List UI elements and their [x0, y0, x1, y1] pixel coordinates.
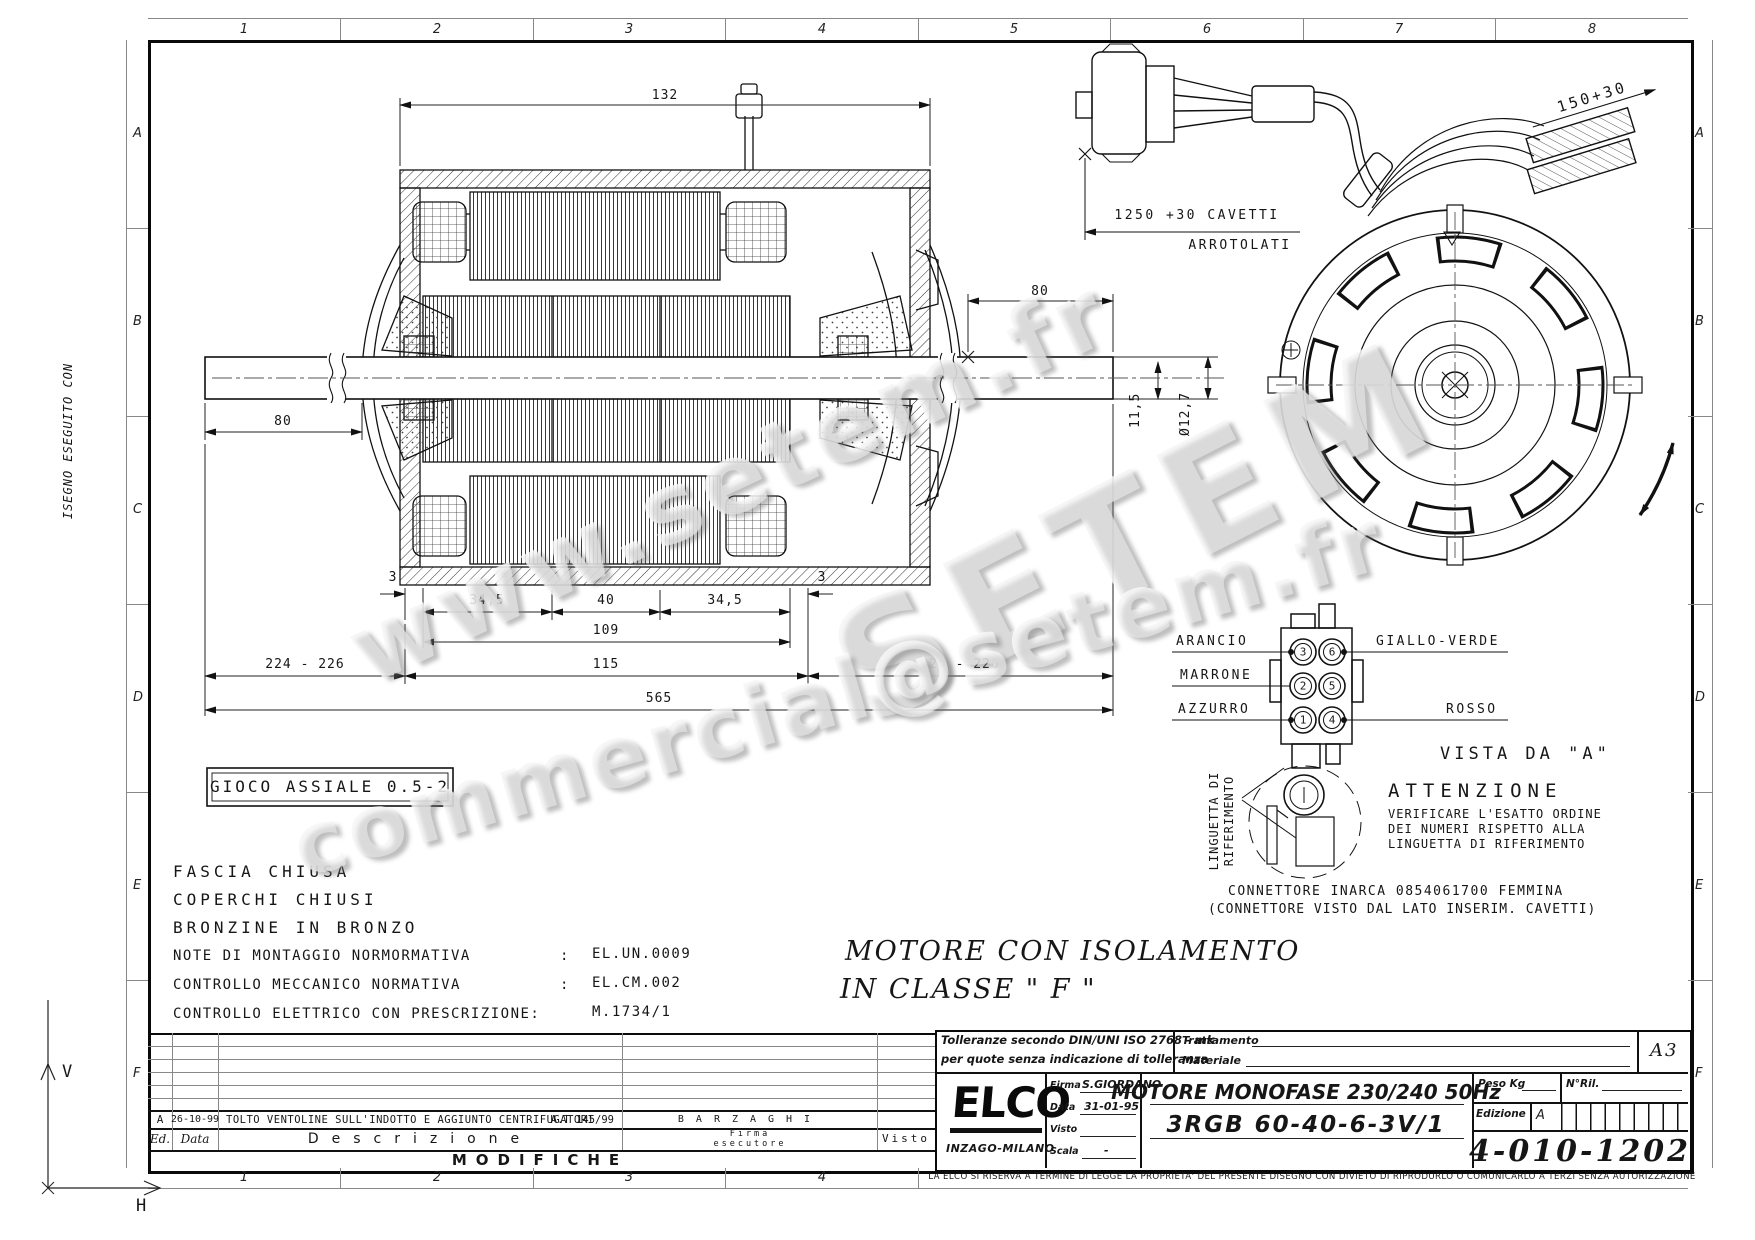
wire-label-arancio: ARANCIO [1176, 634, 1248, 649]
connector-note-line2: (CONNETTORE VISTO DAL LATO INSERIM. CAVE… [1208, 902, 1596, 917]
isolation-note-line1: MOTORE CON ISOLAMENTO [845, 936, 1300, 967]
grid-row-label: A [133, 126, 142, 141]
isolation-note-line2: IN CLASSE " F " [840, 974, 1097, 1005]
grid-row-label: E [1695, 878, 1703, 893]
pin-number-1: 1 [1300, 714, 1307, 727]
note-coperchi: COPERCHI CHIUSI [173, 890, 378, 909]
materiale-label: Materiale [1182, 1054, 1241, 1067]
attenzione-title: ATTENZIONE [1388, 780, 1562, 802]
attenzione-line3: LINGUETTA DI RIFERIMENTO [1388, 837, 1585, 851]
note-montaggio-label: NOTE DI MONTAGGIO NORMORMATIVA [173, 948, 471, 964]
grid-row-label: F [1695, 1066, 1702, 1081]
scala-label: Scala [1050, 1146, 1079, 1157]
outer-border-right [1712, 40, 1713, 1168]
grid-row-label: C [133, 502, 142, 517]
note-montaggio-sep: : [560, 948, 570, 964]
grid-row-label: C [1695, 502, 1704, 517]
note-fascia: FASCIA CHIUSA [173, 862, 350, 881]
peso-label: Peso Kg [1478, 1078, 1525, 1090]
elco-city: INZAGO-MILANO [946, 1142, 1055, 1155]
edizione-value: A [1536, 1108, 1545, 1123]
note-meccanico-value: EL.CM.002 [592, 975, 681, 991]
firma-label: Firma [1050, 1080, 1081, 1091]
edizione-cells [1548, 1102, 1688, 1130]
data-label: Data [1050, 1102, 1075, 1113]
note-bronzine: BRONZINE IN BRONZO [173, 918, 418, 937]
wire-label-rosso: ROSSO [1446, 702, 1498, 717]
engineering-drawing-sheet: 1 2 3 4 5 6 7 8 A B C D E F A B C D E F [0, 0, 1755, 1240]
linguetta-line1: LINGUETTA DI [1207, 772, 1221, 871]
outer-border-bottom [148, 1188, 1688, 1189]
tolerance-note-line2: per quote senza indicazione di tolleranz… [941, 1052, 1208, 1066]
pin-number-6: 6 [1329, 646, 1336, 659]
paper-format-label: A3 [1650, 1040, 1678, 1061]
trattamento-label: Trattamento [1182, 1034, 1259, 1047]
wire-label-azzurro: AZZURRO [1178, 702, 1250, 717]
mod-row-ref: A.T 145/99 [551, 1114, 614, 1126]
pin-number-3: 3 [1300, 646, 1307, 659]
linguetta-line2: RIFERIMENTO [1222, 776, 1236, 866]
datum-h-label: H [136, 1196, 146, 1216]
edizione-label: Edizione [1476, 1108, 1526, 1120]
attenzione-line1: VERIFICARE L'ESATTO ORDINE [1388, 807, 1602, 821]
note-meccanico-sep: : [560, 977, 570, 993]
datum-v-label: V [62, 1062, 72, 1082]
grid-row-label: B [133, 314, 142, 329]
wire-label-marrone: MARRONE [1180, 668, 1252, 683]
sheet-side-note: ISEGNO ESEGUITO CON [61, 361, 75, 521]
nril-label: N°Ril. [1566, 1078, 1599, 1090]
note-elettrico-value: M.1734/1 [592, 1004, 671, 1020]
grid-row-label: D [133, 690, 143, 705]
linguetta-label: LINGUETTA DI RIFERIMENTO [1207, 751, 1237, 891]
dim-label-11-5: 11,5 [1128, 393, 1143, 428]
elco-logo-bar [950, 1128, 1042, 1133]
vista-da-a-label: VISTA DA "A" [1440, 744, 1611, 764]
grid-row-label: A [1695, 126, 1704, 141]
pin-number-2: 2 [1300, 680, 1307, 693]
tolerance-note-line1: Tolleranze secondo DIN/UNI ISO 2768 - mk [941, 1033, 1214, 1047]
mod-row-desc: TOLTO VENTOLINE SULL'INDOTTO E AGGIUNTO … [226, 1114, 594, 1126]
grid-row-label: B [1695, 314, 1704, 329]
dim-label-12-7: Ø12,7 [1178, 392, 1193, 436]
visto-label: Visto [1050, 1124, 1077, 1135]
connector-note-line1: CONNETTORE INARCA 0854061700 FEMMINA [1228, 884, 1564, 899]
grid-row-label: E [133, 878, 141, 893]
note-meccanico-label: CONTROLLO MECCANICO NORMATIVA [173, 977, 461, 993]
wire-label-giallo-verde: GIALLO-VERDE [1376, 634, 1500, 649]
pin-number-5: 5 [1329, 680, 1336, 693]
attenzione-line2: DEI NUMERI RISPETTO ALLA [1388, 822, 1585, 836]
grid-row-label: D [1695, 690, 1705, 705]
note-elettrico-label: CONTROLLO ELETTRICO CON PRESCRIZIONE: [173, 1006, 540, 1022]
note-montaggio-value: EL.UN.0009 [592, 946, 691, 962]
pin-number-4: 4 [1329, 714, 1336, 727]
